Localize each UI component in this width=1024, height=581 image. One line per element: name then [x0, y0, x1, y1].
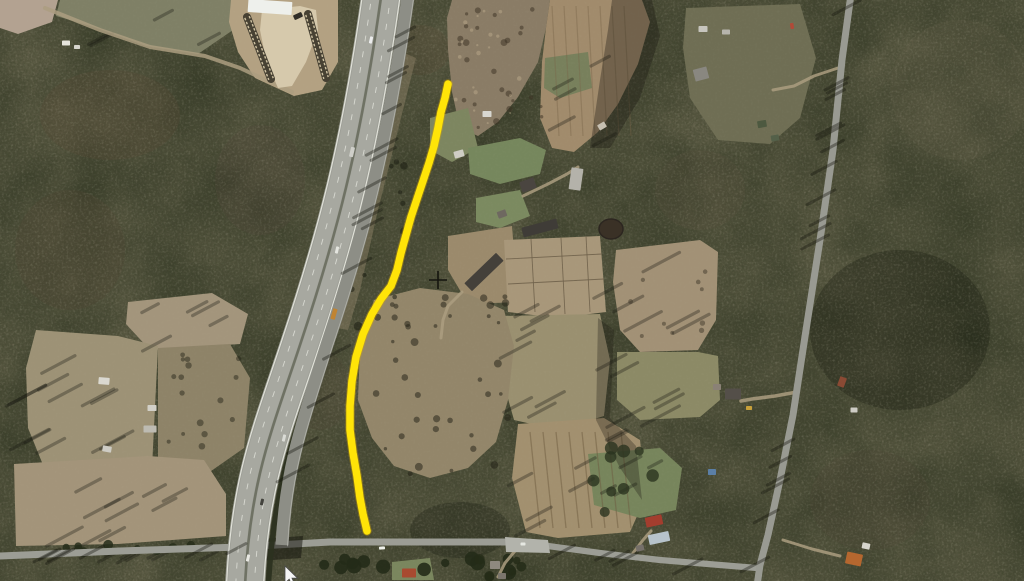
- field-layer: [0, 0, 1024, 581]
- aerial-map[interactable]: [0, 0, 1024, 581]
- map-viewport: [0, 0, 1024, 581]
